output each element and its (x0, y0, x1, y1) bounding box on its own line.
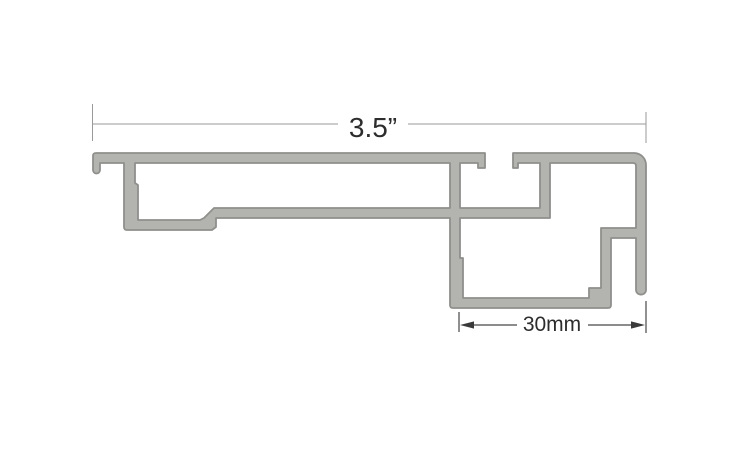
left-arrowhead-icon (460, 321, 474, 328)
extrusion-profile-cross-section (93, 153, 646, 308)
right-arrowhead-icon (631, 321, 645, 328)
width-dimension-label: 3.5” (349, 112, 397, 143)
width-dimension: 3.5” (93, 104, 647, 143)
diagram-canvas: 3.5” 30mm (0, 0, 753, 453)
extrusion-profile-drawing: 3.5” 30mm (0, 0, 753, 453)
depth-dimension-label: 30mm (523, 313, 581, 336)
